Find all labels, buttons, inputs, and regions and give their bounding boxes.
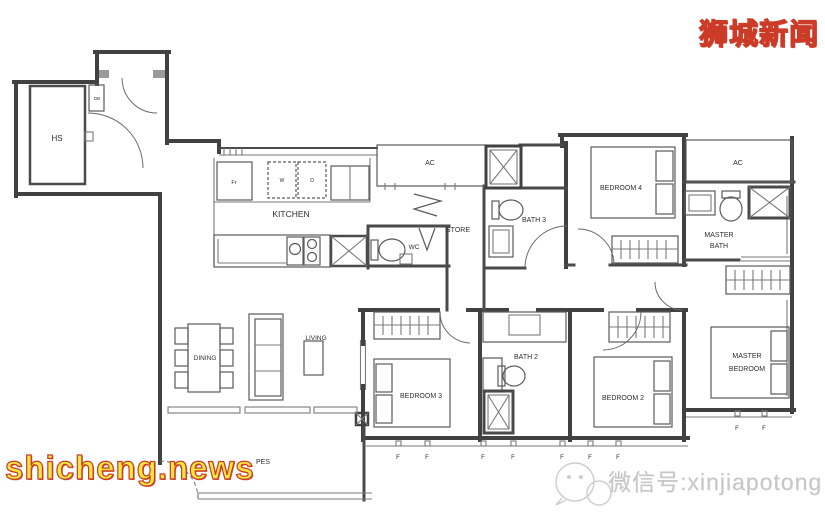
bedroom3-door-arc <box>440 312 470 343</box>
window-marker-f: F <box>762 426 766 432</box>
bedroom2-bed <box>594 357 672 427</box>
wc-toilet <box>379 239 405 261</box>
bedroom4 <box>578 147 678 265</box>
wechat-icon <box>556 463 611 505</box>
coffee-table <box>304 341 323 375</box>
bedroom4-wardrobe <box>612 236 678 263</box>
room-label-pes: PES <box>256 459 270 466</box>
room-label-master-bath-1: MASTER <box>704 232 733 239</box>
sofa <box>249 314 283 400</box>
room-label-ac-centre: AC <box>425 160 435 167</box>
store-folding-door <box>414 194 441 216</box>
window-marker-f: F <box>735 426 739 432</box>
bath2 <box>483 312 566 433</box>
entry-area <box>30 70 165 184</box>
sliding-door <box>168 407 357 413</box>
window-marker-f: F <box>481 455 485 461</box>
master-bed <box>711 327 789 398</box>
master-wardrobe <box>726 266 790 294</box>
bedroom3-wardrobe <box>374 312 440 339</box>
bath3-door-arc <box>525 226 567 268</box>
room-label-bedroom2: BEDROOM 2 <box>602 395 644 402</box>
window-marker-f: F <box>396 455 400 461</box>
floor-plan-image: HS DB KITCHEN Fr W D WC STORE AC AC BATH… <box>0 0 825 512</box>
room-label-bedroom3: BEDROOM 3 <box>400 393 442 400</box>
room-label-ac-right: AC <box>733 160 743 167</box>
room-label-master-bedroom-2: BEDROOM <box>729 366 765 373</box>
fridge-label: Fr <box>231 180 236 186</box>
room-label-db: DB <box>94 96 100 101</box>
bedroom2-wardrobe <box>609 312 670 342</box>
window-marker-f: F <box>425 455 429 461</box>
room-label-wc: WC <box>409 244 420 251</box>
wechat-id-watermark: 微信号:xinjiapotong <box>608 463 822 497</box>
master-bedroom <box>655 266 790 398</box>
bath3 <box>489 200 567 268</box>
room-label-bath3: BATH 3 <box>522 217 546 224</box>
bath2-tub <box>483 312 566 342</box>
window-marker-f: F <box>560 455 564 461</box>
room-label-kitchen: KITCHEN <box>272 209 309 219</box>
bath2-vanity <box>483 358 502 392</box>
window-marker-f: F <box>616 455 620 461</box>
bath2-toilet <box>503 366 525 386</box>
shicheng-news-logo: 狮城新闻 <box>699 11 819 53</box>
wc-room <box>371 228 435 264</box>
fixed-window-markers: F F F F F F F F F <box>396 426 766 461</box>
bedroom4-bed <box>591 147 675 218</box>
master-bath-shower <box>749 187 790 218</box>
cooktop <box>287 237 320 265</box>
bedroom3 <box>374 312 470 427</box>
window-marker-f: F <box>511 455 515 461</box>
hs-door-arc <box>88 113 143 168</box>
kitchen-sink <box>331 236 367 266</box>
master-bath <box>685 187 790 261</box>
bedroom2 <box>594 312 672 427</box>
wc-door-mark <box>419 228 435 250</box>
front-door-arc <box>122 78 157 113</box>
floor-plan-drawing: HS DB KITCHEN Fr W D WC STORE AC AC BATH… <box>0 0 825 512</box>
room-label-bedroom4: BEDROOM 4 <box>600 185 642 192</box>
room-label-dining: DINING <box>194 355 217 362</box>
room-label-store: STORE <box>446 227 470 234</box>
washer-label: W <box>280 178 285 184</box>
bath2-shower <box>484 391 513 433</box>
outer-walls <box>14 52 794 500</box>
ac-ledges <box>377 140 792 190</box>
room-label-master-bath-2: BATH <box>710 243 728 250</box>
bedroom4-door-arc <box>578 229 614 265</box>
window-frame-squares <box>396 411 767 446</box>
shaft <box>486 146 521 188</box>
master-door-arc <box>655 282 683 310</box>
room-label-living: LIVING <box>305 335 326 342</box>
bath3-toilet <box>499 200 523 220</box>
room-label-hs: HS <box>51 134 62 143</box>
dryer-label: D <box>310 178 314 184</box>
master-bath-toilet <box>720 197 742 221</box>
room-label-master-bedroom-1: MASTER <box>732 353 761 360</box>
room-label-bath2: BATH 2 <box>514 354 538 361</box>
window-marker-f: F <box>588 455 592 461</box>
kitchen <box>214 158 441 267</box>
site-url-watermark: shicheng.news <box>5 449 255 487</box>
